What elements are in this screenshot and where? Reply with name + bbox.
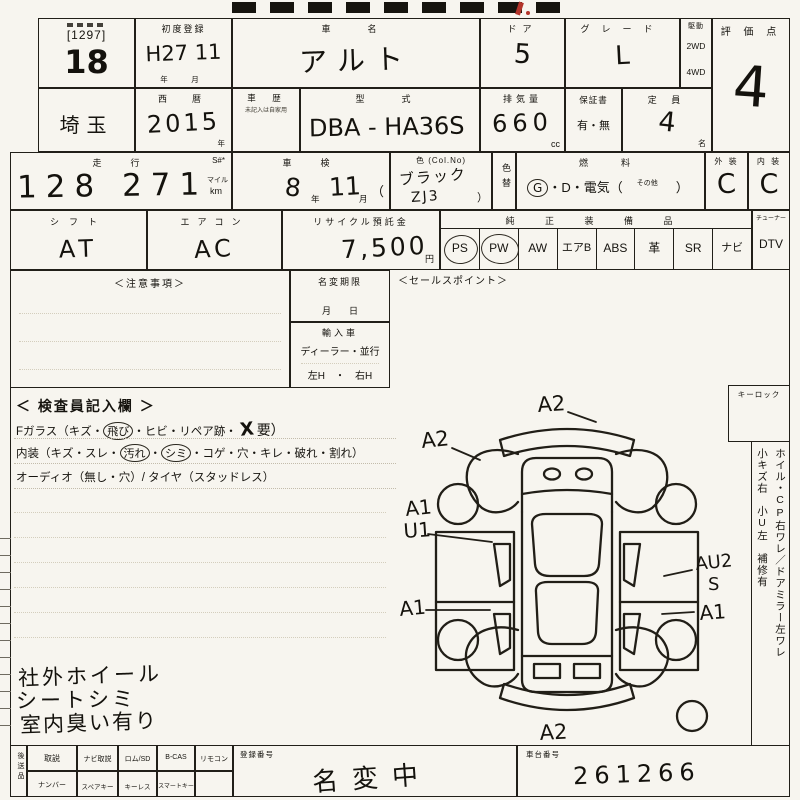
note-interior-smell: 室内臭い有り	[20, 705, 159, 740]
fglass-pre: Fガラス（キズ・	[16, 426, 103, 438]
interior-label: 内 装	[749, 156, 789, 167]
grade-box: グレード L	[565, 18, 680, 88]
import-dealer-line: ディーラー・並行	[291, 343, 389, 358]
lot-tiny-header	[67, 23, 107, 27]
caution-label: ＜注意事項＞	[11, 275, 289, 290]
aircon-value: AC	[147, 232, 281, 267]
name-change-label: 名変期限	[291, 275, 389, 288]
import-handle-line: 左H ・ 右H	[291, 367, 389, 382]
equipment-cell-ps: PS	[441, 228, 480, 269]
import-box: 輸入車 ディーラー・並行 左H ・ 右H	[290, 322, 390, 388]
equipment-cells: PS PW AW エアB ABS 革 SR ナビ	[441, 228, 751, 269]
dtv-label: DTV	[753, 237, 789, 251]
interior-stain-circled: シミ	[161, 444, 191, 462]
year-value: 2015	[135, 107, 231, 140]
equipment-cell-abs: ABS	[597, 228, 636, 269]
cell-spare-key: スペアキー	[77, 771, 118, 797]
first-registration-label: 初度登録	[136, 22, 231, 35]
score-box: 評 価 点 4	[712, 18, 790, 152]
equipment-cell-sr: SR	[674, 228, 713, 269]
damage-label-rear: A2	[539, 720, 568, 745]
lot-bracket: [1297]	[39, 28, 134, 42]
ruled-line	[14, 537, 386, 538]
equipment-airbag-label: エアB	[562, 242, 591, 254]
ruled-line	[14, 463, 396, 464]
ruled-line	[14, 562, 386, 563]
capacity-unit: 名	[698, 138, 706, 149]
model-code-label: 型 式	[301, 92, 479, 105]
equipment-aw-label: AW	[528, 241, 547, 255]
interior-sep: ・	[150, 448, 162, 460]
pw-hand-circle	[479, 232, 520, 266]
cell-smart-key: スマートキー	[157, 771, 195, 797]
first-registration-box: 初度登録 H27 11 年 月	[135, 18, 232, 88]
first-registration-units: 年 月	[136, 74, 231, 85]
chassis-number-box: 車台番号 261266	[517, 745, 790, 797]
fuel-label: 燃 料	[517, 156, 704, 169]
equipment-cell-leather: 革	[635, 228, 674, 269]
inspection-month-unit: 月	[359, 193, 368, 205]
damage-label-front: A2	[537, 391, 566, 417]
mileage-box: 走 行 S#* 128 271 マイル km	[10, 152, 232, 210]
inspector-line-interior: 内装（キズ・スレ・汚れ・シミ・コゲ・穴・キレ・破れ・割れ）	[16, 444, 364, 462]
car-name-value: アルト	[232, 35, 479, 84]
margin-tick	[0, 623, 11, 624]
ruled-line	[14, 637, 386, 638]
damage-label-right-au2: AU2	[694, 550, 733, 575]
auction-sheet: [1297] 18 初度登録 H27 11 年 月 車 名 アルト ドア 5 グ…	[0, 0, 800, 800]
cell-keyless: キーレス	[118, 771, 157, 797]
capacity-box: 定 員 4 名	[622, 88, 712, 152]
ruled-line	[19, 341, 281, 342]
equipment-leather-label: 革	[648, 241, 660, 255]
margin-tick	[0, 657, 11, 658]
lot-box: [1297] 18	[38, 18, 135, 88]
margin-tick	[0, 640, 11, 641]
margin-tick	[0, 691, 11, 692]
equipment-navi-label: ナビ	[721, 242, 743, 254]
equipment-cell-pw: PW	[480, 228, 519, 269]
mileage-unit-km: km	[210, 186, 222, 196]
rom-sd-label: ロム/SD	[119, 754, 156, 764]
fglass-mid: ・ヒビ・リペア跡・	[133, 426, 237, 438]
aircon-box: エアコン AC	[147, 210, 282, 270]
lot-number: 18	[39, 43, 134, 81]
drive-label: 駆動	[681, 21, 711, 31]
doors-value: 5	[480, 36, 565, 73]
damage-label-front-left: A2	[420, 426, 450, 453]
prefecture-box: 埼玉	[38, 88, 135, 152]
color-box: 色 (Col.No) ブラック ZJ3 ）	[390, 152, 492, 210]
year-box: 西 暦 2015 年	[135, 88, 232, 152]
sales-point-label: ＜セールスポイント＞	[398, 272, 508, 287]
recycle-value: 7,500	[340, 231, 428, 264]
score-value: 4	[711, 52, 791, 122]
drive-box: 駆動 2WD 4WD	[680, 18, 712, 88]
margin-tick	[0, 572, 11, 573]
displacement-box: 排気量 660 cc	[480, 88, 565, 152]
drive-4wd: 4WD	[681, 67, 711, 77]
right-note-wheel-mirror: ホイル・CP右ワレ／ドアミラー左ワレ	[771, 448, 789, 740]
grade-value: L	[565, 38, 679, 74]
inspection-year-unit: 年	[311, 193, 320, 205]
dtv-box: チューナー DTV	[752, 210, 790, 270]
cell-manual: 取説	[27, 745, 77, 771]
drive-2wd: 2WD	[681, 41, 711, 51]
year-label: 西 暦	[136, 92, 231, 105]
warranty-value: 有・無	[566, 117, 621, 133]
history-box: 車 歴 未記入は自家用	[232, 88, 300, 152]
ruled-line	[14, 612, 386, 613]
inspection-paren: （	[371, 181, 384, 200]
model-code-box: 型 式 DBA - HA36S	[300, 88, 480, 152]
name-change-units: 月 日	[291, 304, 389, 317]
navi-manual-label: ナビ取説	[78, 754, 117, 764]
name-change-box: 名変期限 月 日	[290, 270, 390, 322]
prefecture-value: 埼玉	[39, 109, 134, 138]
cell-rom-sd: ロム/SD	[118, 745, 157, 771]
history-label: 車 歴	[233, 92, 299, 104]
car-name-box: 車 名 アルト	[232, 18, 480, 88]
history-note: 未記入は自家用	[233, 105, 299, 114]
equipment-label: 純 正 装 備 品	[505, 216, 686, 226]
warranty-label: 保証書	[566, 94, 621, 106]
chassis-number-value: 261266	[573, 758, 702, 790]
smart-key-label: スマートキー	[158, 781, 194, 790]
equipment-box: 純 正 装 備 品 PS PW AW エアB ABS 革 SR ナビ	[440, 210, 752, 270]
shift-label: シフト	[11, 215, 146, 228]
damage-label-left-rear-a1: A1	[400, 595, 427, 621]
margin-tick	[0, 606, 11, 607]
recolor-label: 色替	[500, 163, 513, 193]
damage-label-right-a1: A1	[699, 599, 727, 625]
color-value: ブラック	[398, 163, 468, 190]
displacement-label: 排気量	[481, 92, 564, 105]
exterior-label: 外 装	[706, 156, 747, 167]
ps-hand-circle	[442, 233, 480, 266]
right-vertical-notes: ホイル・CP右ワレ／ドアミラー左ワレ 小キズ右 小U左 補修有	[752, 448, 789, 740]
spare-key-label: スペアキー	[78, 781, 117, 791]
inspection-month-value: 11	[328, 171, 361, 202]
shift-value: AT	[11, 233, 147, 266]
cell-bcas: B-CAS	[157, 745, 195, 771]
recycle-label: リサイクル預託金	[283, 215, 439, 228]
fuel-gasoline-circled: G	[527, 179, 548, 197]
doors-label: ドア	[481, 22, 564, 35]
grade-label: グレード	[566, 22, 679, 35]
interior-dirt-circled: 汚れ	[120, 444, 150, 462]
ruled-line	[14, 488, 396, 489]
ruled-line	[14, 512, 386, 513]
ruled-line	[19, 369, 281, 370]
fuel-other: その他	[637, 180, 658, 187]
margin-tick	[0, 555, 11, 556]
import-label: 輸入車	[291, 326, 389, 339]
equipment-cell-aw: AW	[519, 228, 558, 269]
mileage-value: 128 271	[17, 166, 209, 205]
inspection-label: 車 検	[233, 156, 389, 169]
equipment-header: 純 正 装 備 品	[441, 211, 751, 229]
registration-number-box: 登録番号 名変中	[233, 745, 517, 797]
margin-tick	[0, 708, 11, 709]
fuel-close-paren: ）	[676, 180, 689, 195]
inspection-box: 車 検 8 年 11 月 （	[232, 152, 390, 210]
recolor-box: 色替	[492, 152, 516, 210]
inspector-heading: ＜ 検査員記入欄 ＞	[16, 396, 156, 416]
damage-label-right-s: S	[708, 574, 719, 595]
margin-tick	[0, 538, 11, 539]
right-note-scratch-repair: 小キズ右 小U左 補修有	[753, 448, 771, 740]
interior-pre: 内装（キズ・スレ・	[16, 448, 120, 460]
shift-box: シフト AT	[10, 210, 147, 270]
margin-tick	[0, 674, 11, 675]
margin-tick	[0, 725, 11, 726]
interior-box: 内 装 C	[748, 152, 790, 210]
warranty-box: 保証書 有・無	[565, 88, 622, 152]
equipment-sr-label: SR	[685, 241, 702, 255]
inspector-line-audio: オーディオ（無し・穴）/ タイヤ（スタッドレス）	[16, 469, 274, 485]
caution-box: ＜注意事項＞	[10, 270, 290, 388]
interior-post: ・コゲ・穴・キレ・破れ・割れ）	[191, 448, 364, 460]
year-unit: 年	[218, 138, 226, 149]
red-stamp-dot	[526, 11, 530, 15]
damage-label-left-u1: U1	[403, 517, 432, 543]
equipment-cell-navi: ナビ	[713, 228, 751, 269]
registration-number-label: 登録番号	[240, 749, 274, 760]
fuel-box: 燃 料 G・D・電気（その他）	[516, 152, 705, 210]
ruled-line	[301, 363, 379, 364]
aircon-label: エアコン	[148, 215, 281, 228]
doors-box: ドア 5	[480, 18, 565, 88]
fglass-required: 要）	[257, 422, 285, 438]
displacement-value: 660	[481, 108, 565, 139]
car-damage-diagram: A2 A2 A1 U1 A1 AU2 S A1 A2	[400, 390, 740, 746]
keyless-label: キーレス	[119, 781, 156, 791]
plate-label: ナンバー	[28, 780, 76, 790]
mileage-s-label: S#*	[212, 156, 225, 165]
tuner-label: チューナー	[753, 213, 789, 222]
cell-plate: ナンバー	[27, 771, 77, 797]
bcas-label: B-CAS	[158, 754, 194, 761]
color-code: ZJ3	[410, 188, 440, 206]
clipped-title-fragments	[232, 2, 562, 13]
score-label: 評 価 点	[713, 23, 789, 38]
registration-number-value: 名変中	[311, 754, 433, 799]
capacity-value: 4	[622, 102, 713, 142]
manual-label: 取説	[28, 753, 76, 764]
ruled-line	[19, 313, 281, 314]
remote-label: リモコン	[196, 754, 232, 764]
fuel-rest: ・D・電気（	[548, 180, 622, 195]
interior-value: C	[748, 168, 789, 200]
fuel-content: G・D・電気（その他）	[527, 177, 689, 197]
displacement-unit: cc	[551, 139, 560, 149]
equipment-abs-label: ABS	[603, 241, 627, 255]
cell-remote: リモコン	[195, 745, 233, 771]
bottom-side-label: 後送品	[15, 752, 25, 782]
exterior-box: 外 装 C	[705, 152, 748, 210]
recycle-unit: 円	[425, 252, 434, 265]
ruled-line	[14, 587, 386, 588]
ruled-line	[14, 438, 396, 439]
exterior-value: C	[705, 168, 748, 202]
model-code-value: DBA - HA36S	[309, 112, 465, 143]
color-paren: ）	[477, 189, 488, 205]
cell-navi-manual: ナビ取説	[77, 745, 118, 771]
chassis-number-label: 車台番号	[526, 749, 560, 760]
first-registration-value: H27 11	[136, 39, 232, 66]
inspection-year-value: 8	[284, 172, 303, 203]
recycle-box: リサイクル預託金 7,500 円	[282, 210, 440, 270]
margin-tick	[0, 589, 11, 590]
car-name-label: 車 名	[233, 22, 479, 35]
mileage-unit-mile: マイル	[207, 175, 228, 185]
bottom-side-label-box: 後送品	[10, 745, 27, 797]
inspector-line-fglass: Fガラス（キズ・飛び・ヒビ・リペア跡・X要）	[16, 419, 285, 440]
cell-empty	[195, 771, 233, 797]
equipment-cell-airbag: エアB	[558, 228, 597, 269]
